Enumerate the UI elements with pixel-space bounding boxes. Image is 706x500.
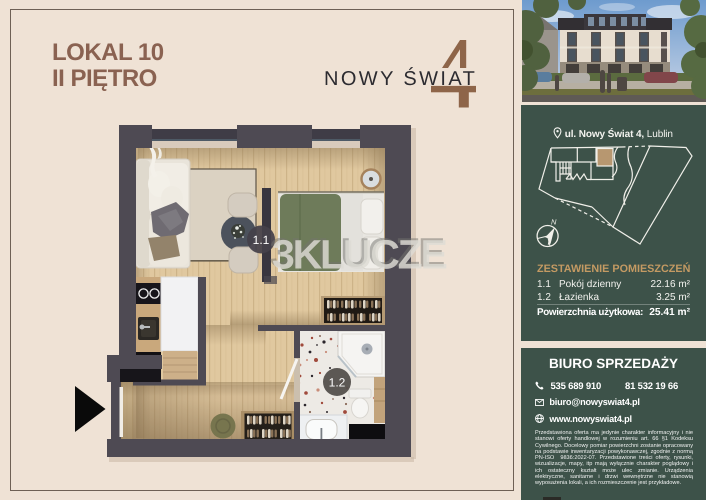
svg-text:N: N xyxy=(551,218,557,227)
svg-text:3KLUCZE: 3KLUCZE xyxy=(272,232,447,278)
svg-text:1.1: 1.1 xyxy=(253,233,270,247)
svg-text:1.2: 1.2 xyxy=(329,376,346,390)
